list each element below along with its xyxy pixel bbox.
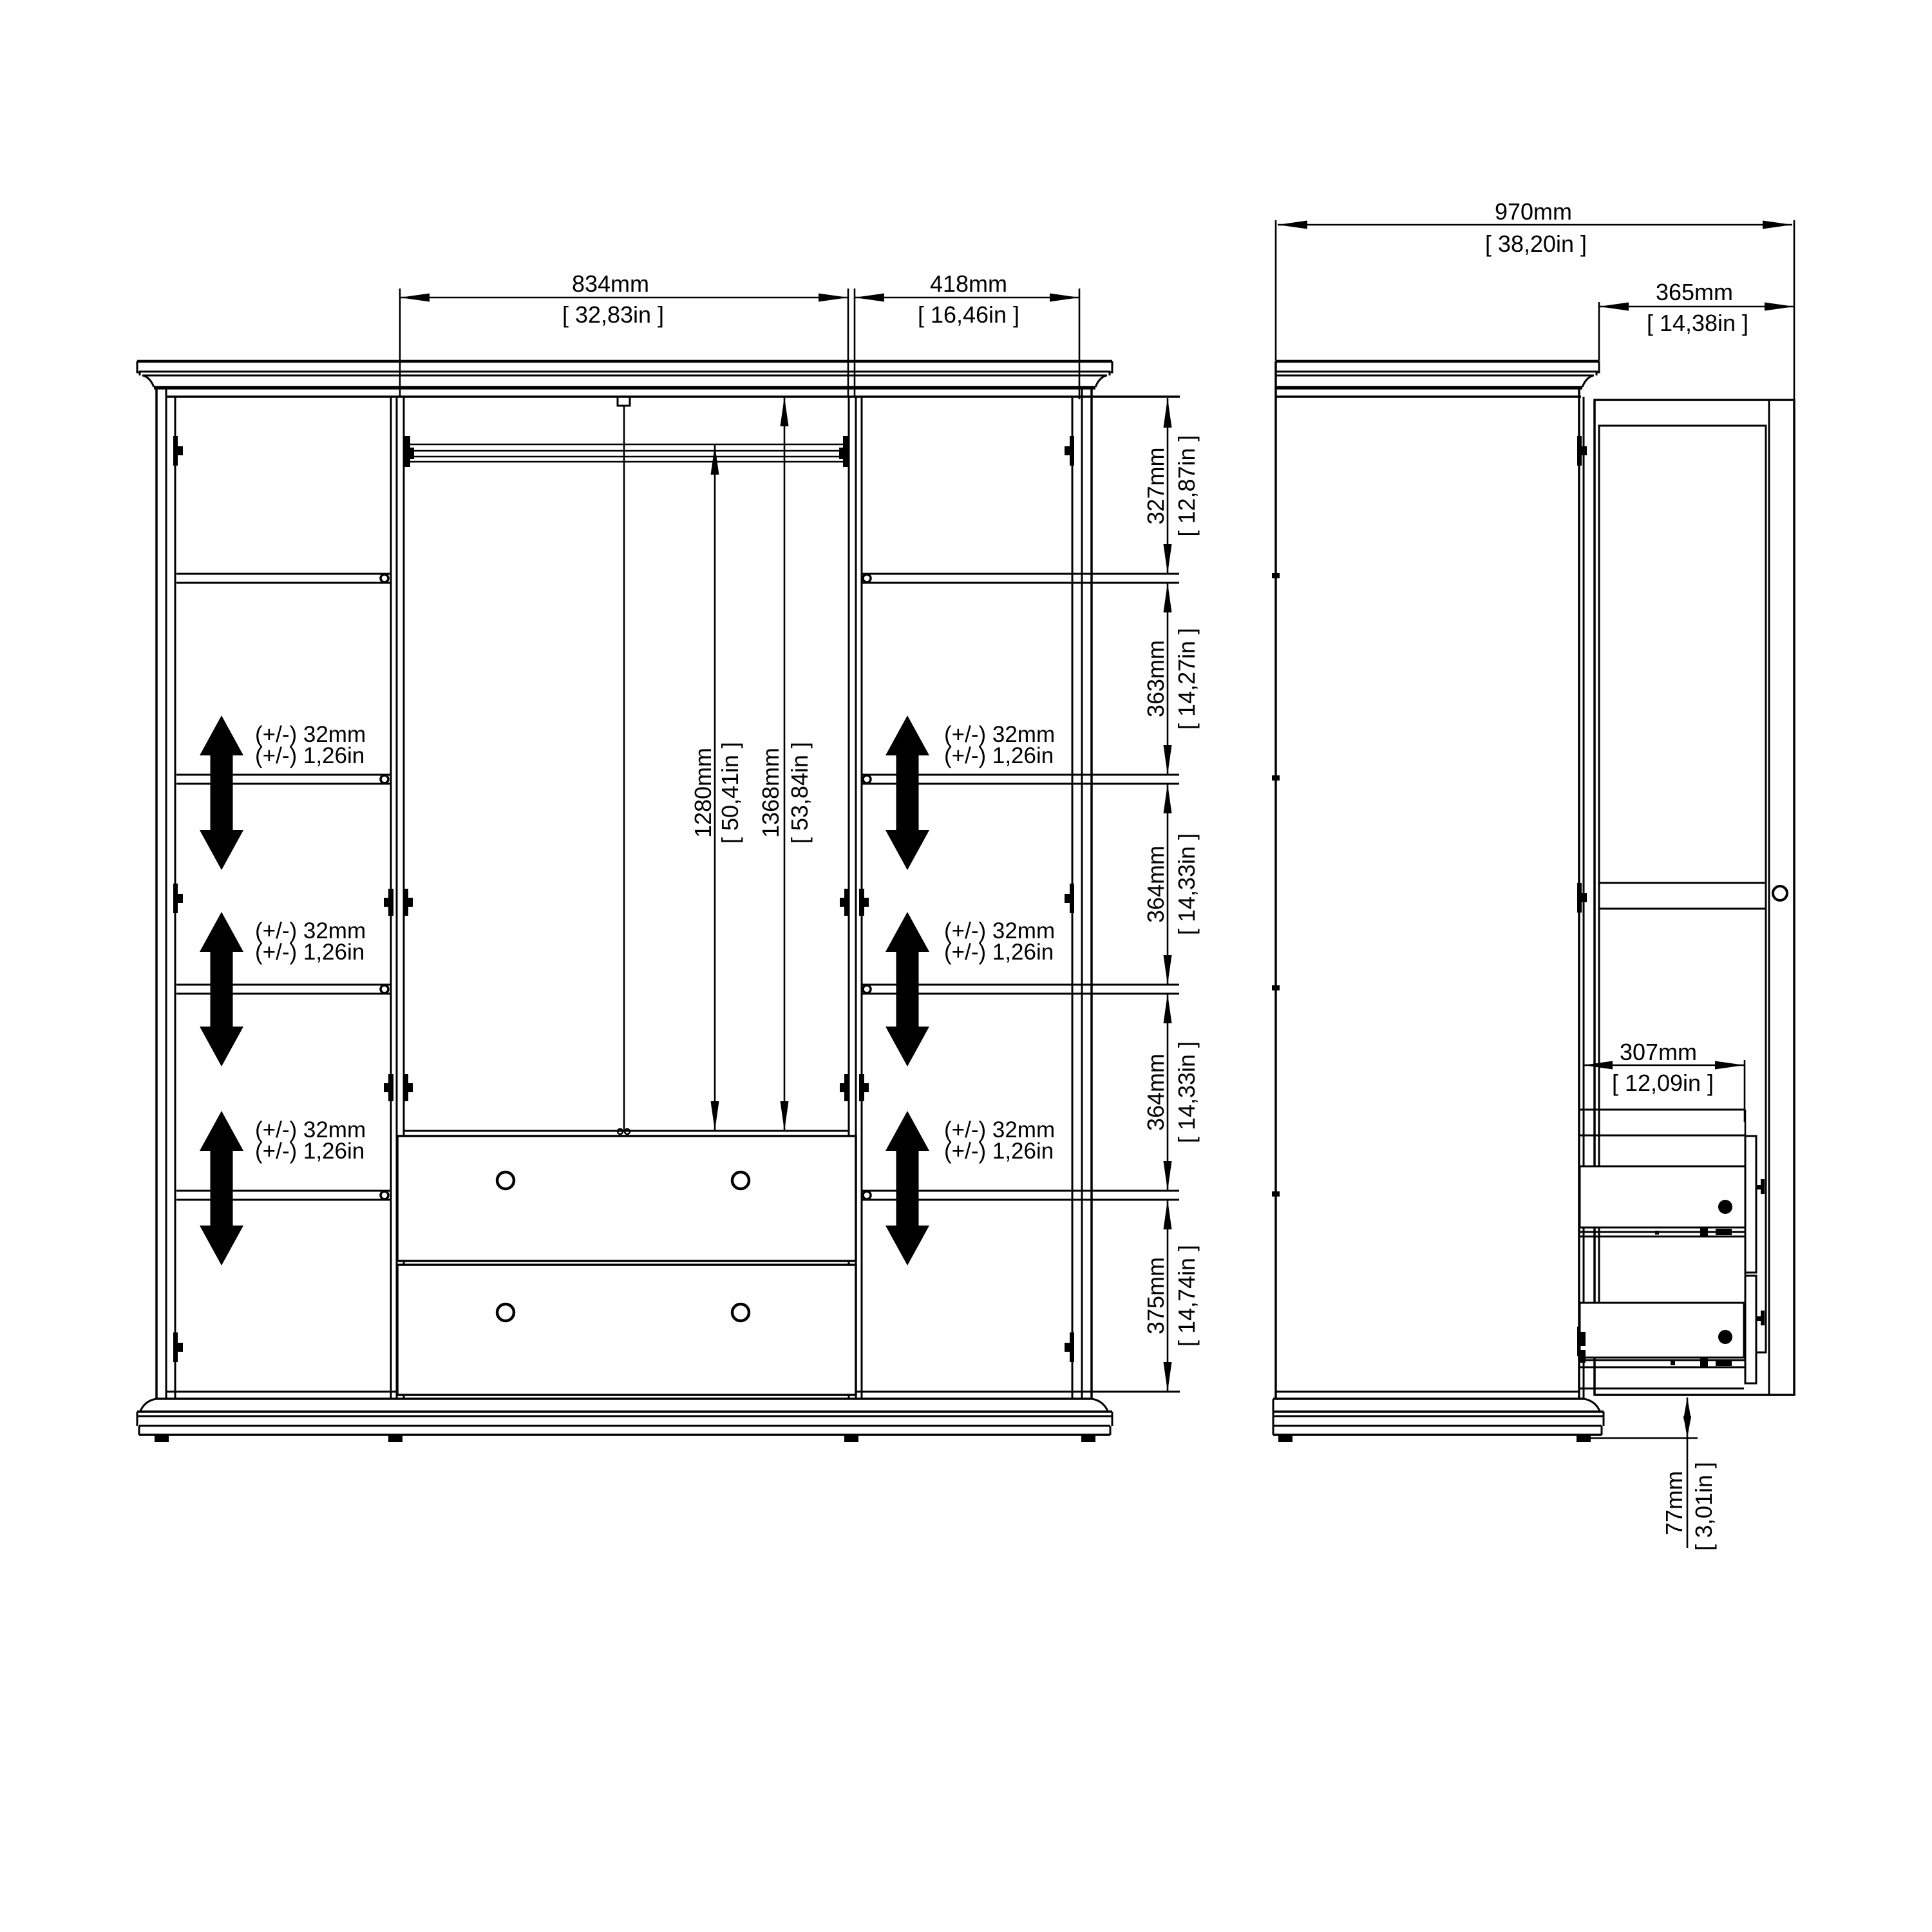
- svg-text:[ 38,20in ]: [ 38,20in ]: [1485, 231, 1587, 257]
- svg-text:970mm: 970mm: [1495, 198, 1572, 225]
- svg-text:[ 50,41in ]: [ 50,41in ]: [717, 742, 743, 844]
- svg-text:[ 12,87in ]: [ 12,87in ]: [1173, 435, 1200, 536]
- svg-text:[ 14,74in ]: [ 14,74in ]: [1173, 1245, 1200, 1347]
- svg-text:[ 12,09in ]: [ 12,09in ]: [1612, 1070, 1714, 1096]
- svg-text:(+/-) 1,26in: (+/-) 1,26in: [944, 743, 1054, 768]
- svg-text:[ 14,33in ]: [ 14,33in ]: [1173, 833, 1200, 935]
- svg-text:375mm: 375mm: [1142, 1257, 1169, 1334]
- svg-text:418mm: 418mm: [930, 270, 1007, 297]
- svg-text:307mm: 307mm: [1620, 1039, 1697, 1065]
- svg-text:364mm: 364mm: [1142, 1054, 1169, 1131]
- svg-text:77mm: 77mm: [1661, 1471, 1687, 1535]
- svg-text:[ 53,84in ]: [ 53,84in ]: [786, 742, 813, 844]
- svg-text:[ 14,27in ]: [ 14,27in ]: [1173, 628, 1200, 730]
- svg-text:834mm: 834mm: [572, 270, 649, 297]
- svg-text:1368mm: 1368mm: [757, 748, 784, 838]
- svg-text:[ 14,33in ]: [ 14,33in ]: [1173, 1041, 1200, 1143]
- svg-text:[ 16,46in ]: [ 16,46in ]: [918, 301, 1019, 328]
- svg-text:365mm: 365mm: [1656, 279, 1733, 305]
- svg-text:327mm: 327mm: [1142, 447, 1169, 524]
- svg-text:[ 14,38in ]: [ 14,38in ]: [1647, 310, 1748, 336]
- svg-text:(+/-) 1,26in: (+/-) 1,26in: [944, 940, 1054, 965]
- svg-text:363mm: 363mm: [1142, 640, 1169, 717]
- svg-text:(+/-) 1,26in: (+/-) 1,26in: [255, 1139, 365, 1164]
- svg-text:364mm: 364mm: [1142, 846, 1169, 923]
- svg-text:(+/-) 1,26in: (+/-) 1,26in: [255, 940, 365, 965]
- svg-text:[ 3,01in ]: [ 3,01in ]: [1690, 1462, 1717, 1551]
- svg-text:1280mm: 1280mm: [690, 748, 716, 838]
- svg-text:(+/-) 1,26in: (+/-) 1,26in: [255, 743, 365, 768]
- svg-text:[ 32,83in ]: [ 32,83in ]: [562, 301, 664, 328]
- svg-text:(+/-) 1,26in: (+/-) 1,26in: [944, 1139, 1054, 1164]
